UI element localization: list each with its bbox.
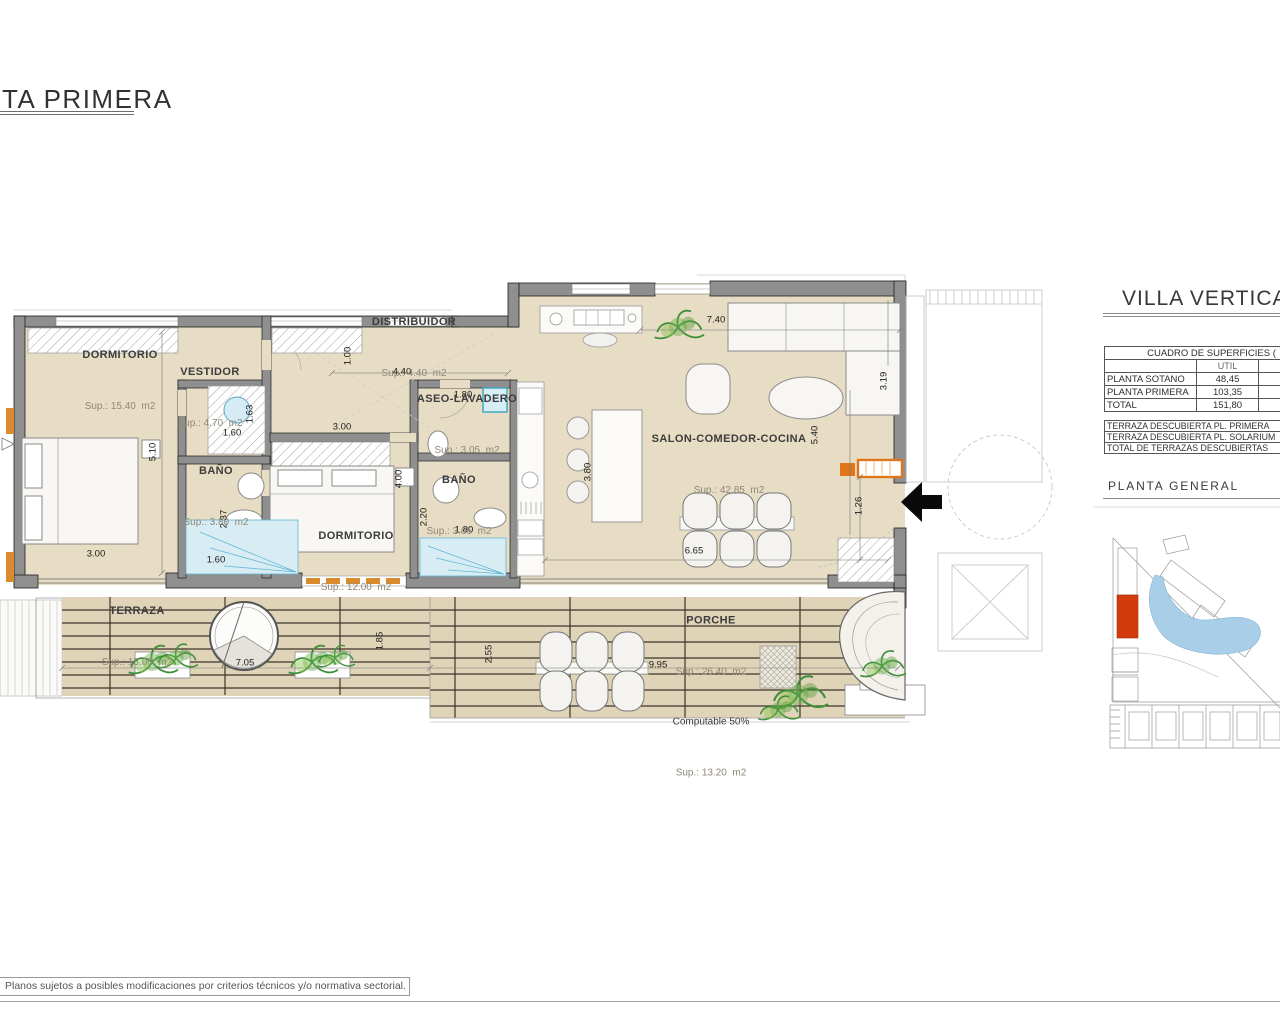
room-area: Sup.: 13.00 m2: [102, 657, 173, 669]
elevator-shaft: [952, 565, 1028, 639]
dim-label: 6.65: [685, 546, 704, 557]
room-area: Sup.: 15.40 m2: [82, 401, 157, 413]
site-plan-map: [1093, 505, 1280, 755]
site-plan-title: PLANTA GENERAL: [1108, 479, 1239, 493]
surface-label: PLANTA SOTANO: [1105, 373, 1197, 386]
terrace-row: TERRAZA DESCUBIERTA PL. SOLARIUM: [1105, 431, 1280, 442]
entrance-arrow-icon: [901, 482, 942, 522]
dim-label: 1.00: [343, 347, 354, 366]
room-name: SALON-COMEDOR-COCINA: [652, 433, 807, 446]
room-name: PORCHE: [673, 615, 750, 628]
room-label-bano-2: BAÑO Sup.: 3.95 m2: [426, 436, 491, 576]
surface-label: TOTAL: [1105, 399, 1197, 412]
dim-label: 9.95: [649, 660, 668, 671]
room-area: Sup.: 42.85 m2: [652, 485, 807, 497]
room-name: VESTIDOR: [177, 366, 242, 379]
surface-label: PLANTA PRIMERA: [1105, 386, 1197, 399]
kitchen-sink: [522, 472, 538, 488]
site-highlighted-unit: [1117, 595, 1138, 638]
room-area: Sup.: 3.80 m2: [183, 517, 248, 529]
dim-label: 2.55: [484, 645, 495, 664]
site-plan-underline: [1103, 498, 1280, 499]
room-label-dormitorio-principal: DORMITORIO Sup.: 15.40 m2: [82, 311, 157, 451]
surface-util: 48,45: [1197, 373, 1259, 386]
surfaces-table: CUADRO DE SUPERFICIES ( UTIL C PLANTA SO…: [1104, 346, 1280, 412]
dim-label: 3.80: [583, 463, 594, 482]
project-title-underline: [1103, 313, 1280, 314]
terrace-surfaces-rows: TERRAZA DESCUBIERTA PL. PRIMERA TERRAZA …: [1104, 420, 1280, 454]
dim-label: 3.00: [333, 422, 352, 433]
left-wall-marker: [6, 408, 14, 434]
dim-label: 4.00: [394, 470, 405, 489]
spiral-stair-circle: [948, 435, 1052, 539]
breakfast-table: [592, 410, 642, 522]
terrace-steps: [0, 600, 62, 696]
room-label-bano-1: BAÑO Sup.: 3.80 m2: [183, 427, 248, 567]
room-name: DISTRIBUIDOR: [372, 316, 456, 329]
room-name: DORMITORIO: [318, 530, 393, 543]
room-name: DORMITORIO: [82, 349, 157, 362]
room-label-terraza: TERRAZA Sup.: 13.00 m2: [102, 567, 173, 707]
room-label-dormitorio-2: DORMITORIO Sup.: 12.00 m2: [318, 492, 393, 632]
adjacent-structures: [906, 290, 1052, 651]
dim-label: 5.40: [810, 426, 821, 445]
table-row: PLANTA SOTANO 48,45: [1105, 373, 1280, 386]
room-label-porche: PORCHE Sup.: 26.40 m2 Computable 50% Sup…: [673, 576, 750, 817]
sheet-border-line: [0, 1001, 1280, 1002]
room-name: ASEO-LAVADERO: [417, 393, 517, 406]
room-area: Sup.: 26.40 m2: [673, 666, 750, 678]
dim-label: 1.85: [375, 632, 386, 651]
project-title: VILLA VERTICA: [1122, 287, 1280, 311]
room-label-salon: SALON-COMEDOR-COCINA Sup.: 42.85 m2: [652, 395, 807, 535]
dim-label: 7.40: [707, 315, 726, 326]
surfaces-col-util: UTIL: [1197, 360, 1259, 373]
terrace-row: TERRAZA DESCUBIERTA PL. PRIMERA: [1105, 421, 1280, 431]
left-arrow-icon: [2, 438, 14, 450]
dim-label: 3.00: [87, 549, 106, 560]
plan-sheet: TA PRIMERA: [0, 0, 1280, 1024]
room-area-computable: Sup.: 13.20 m2: [673, 767, 750, 779]
room-name: BAÑO: [426, 474, 491, 487]
surface-util: 103,35: [1197, 386, 1259, 399]
dim-label: 3.19: [879, 372, 890, 391]
room-name: BAÑO: [183, 465, 248, 478]
title-underline-2: [0, 114, 134, 115]
dim-label: 7.05: [236, 658, 255, 669]
dim-label: 1.63: [245, 405, 256, 424]
dim-label: 1.26: [854, 497, 865, 516]
room-area: Sup.: 3.95 m2: [426, 526, 491, 538]
disclaimer-note: Planos sujetos a posibles modificaciones…: [0, 977, 410, 996]
surfaces-table-header: CUADRO DE SUPERFICIES (: [1105, 347, 1280, 360]
table-row: PLANTA PRIMERA 103,35: [1105, 386, 1280, 399]
room-area: Sup.: 12.00 m2: [318, 582, 393, 594]
surfaces-col-const: C: [1259, 360, 1280, 373]
room-note: Computable 50%: [673, 717, 750, 729]
surfaces-col-empty: [1105, 360, 1197, 373]
room-name: TERRAZA: [102, 605, 173, 618]
site-lagoon: [1149, 575, 1260, 654]
project-title-underline-2: [1103, 316, 1280, 317]
sofa: [728, 303, 900, 351]
terrace-row: TOTAL DE TERRAZAS DESCUBIERTAS: [1105, 442, 1280, 453]
surface-util: 151,80: [1197, 399, 1259, 412]
table-row: TOTAL 151,80: [1105, 399, 1280, 412]
title-underline: [0, 111, 134, 112]
outdoor-dining: [536, 632, 648, 711]
